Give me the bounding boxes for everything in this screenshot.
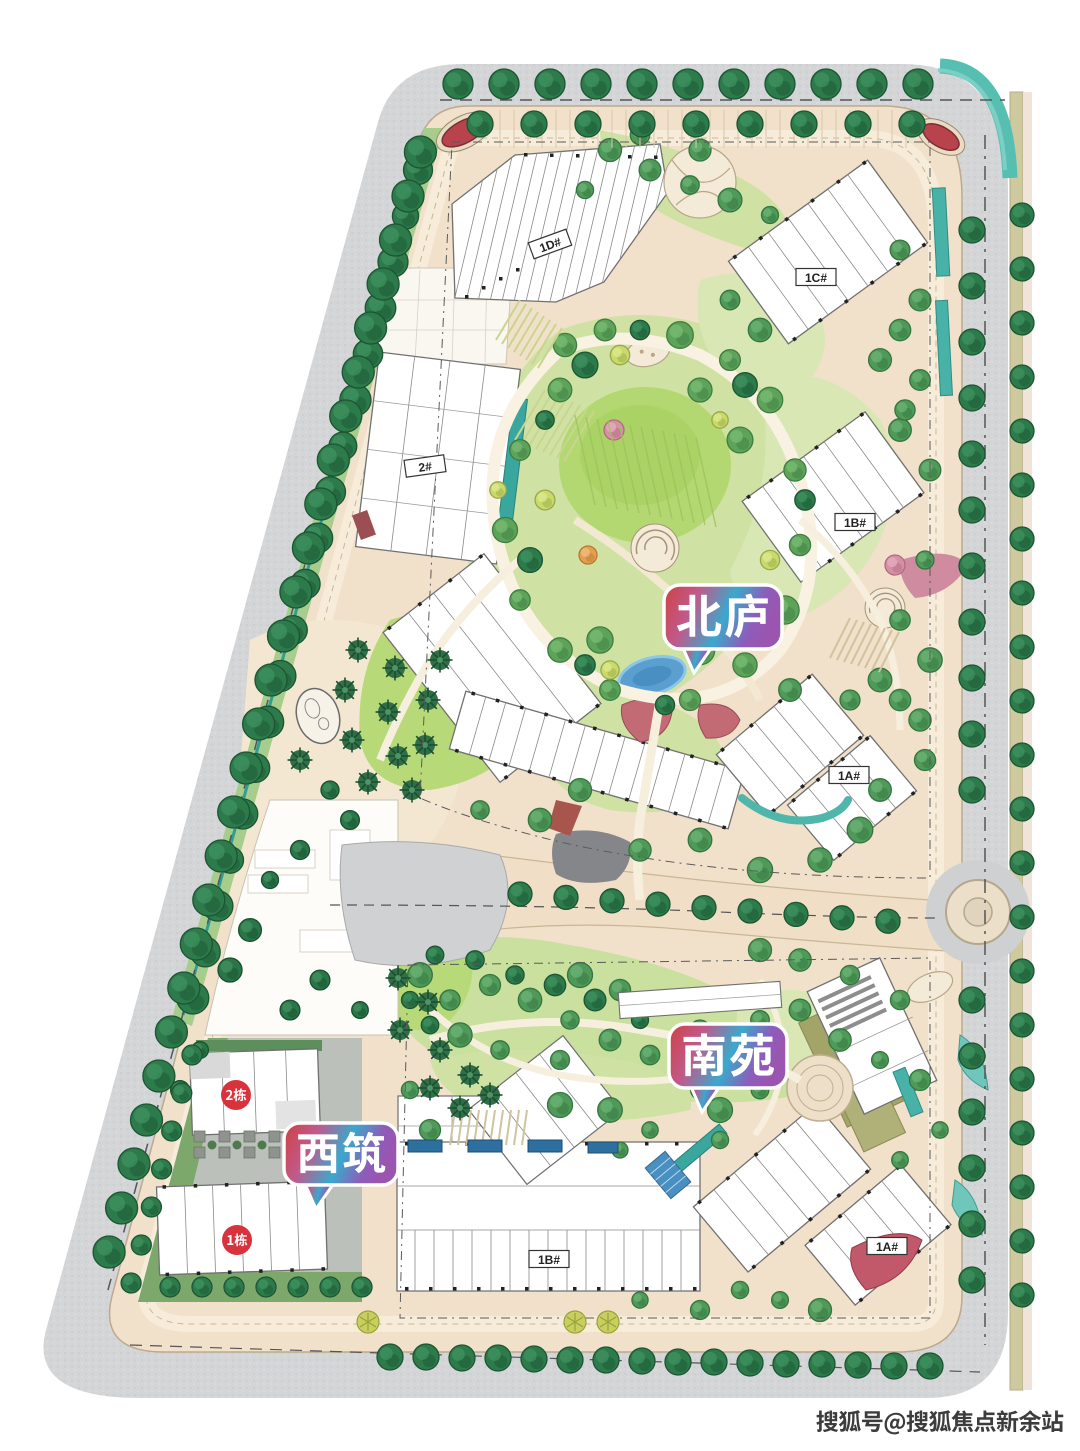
svg-text:1A#: 1A# xyxy=(838,769,860,783)
svg-text:1C#: 1C# xyxy=(805,271,827,285)
svg-text:1B#: 1B# xyxy=(538,1253,560,1267)
svg-text:2#: 2# xyxy=(418,459,433,475)
svg-text:1B#: 1B# xyxy=(844,516,866,530)
svg-text:1A#: 1A# xyxy=(876,1240,898,1254)
